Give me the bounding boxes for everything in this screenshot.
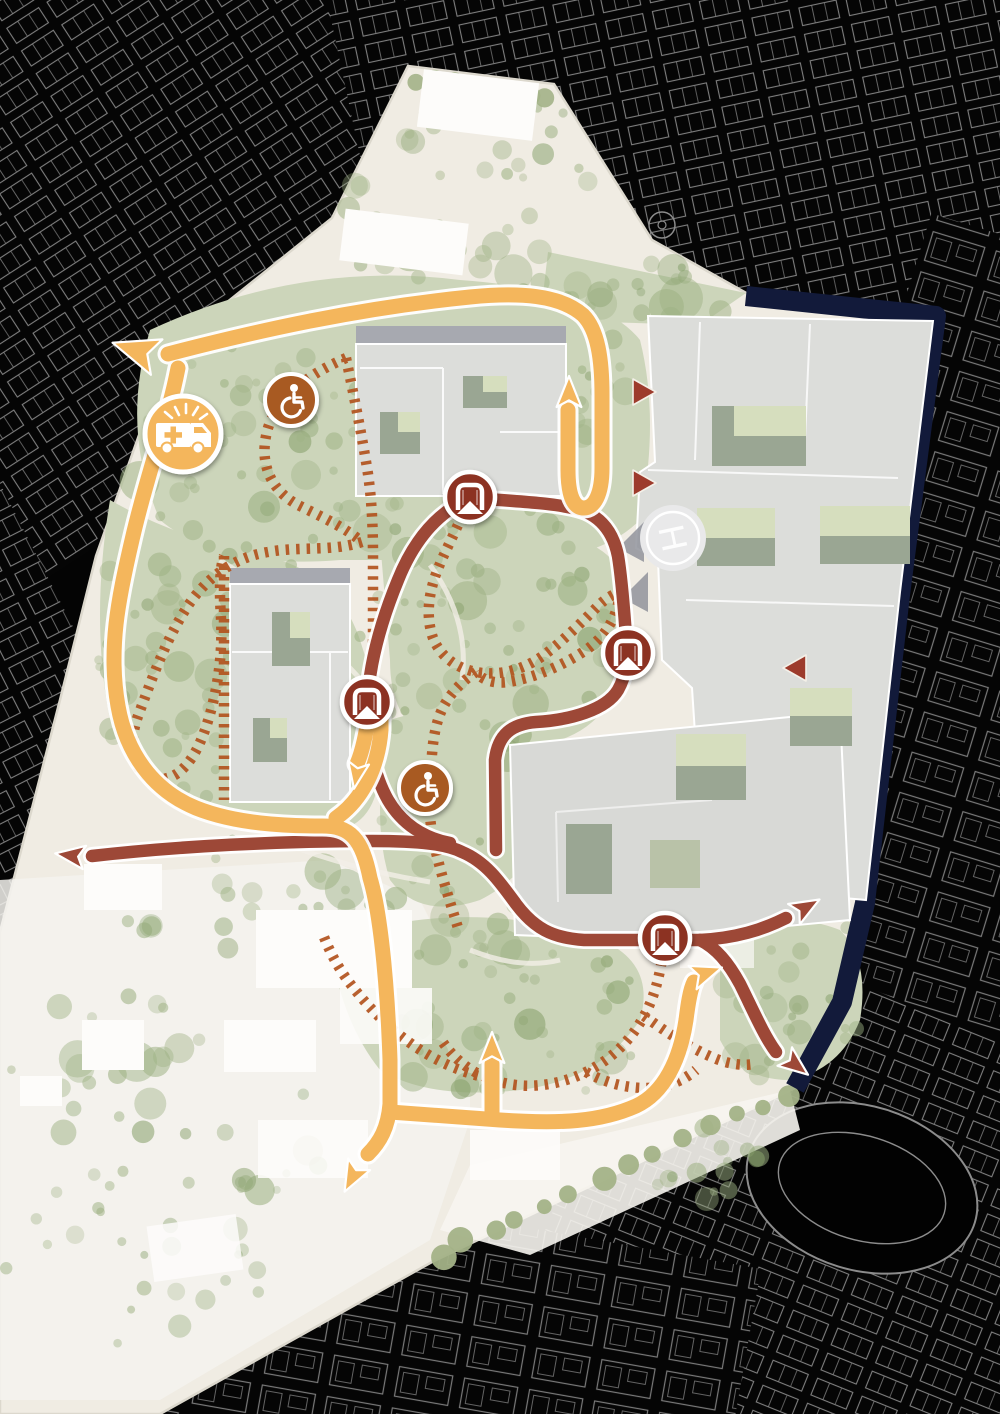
wheelchair-accessible-icon bbox=[265, 374, 317, 426]
main-entrance-icon bbox=[603, 628, 653, 678]
building-north bbox=[356, 326, 566, 496]
ambulance-entrance-icon bbox=[145, 396, 221, 472]
building-west bbox=[230, 568, 350, 802]
main-entrance-icon bbox=[640, 913, 690, 963]
map-canvas: H bbox=[0, 0, 1000, 1414]
helipad-icon: H bbox=[640, 505, 706, 571]
main-entrance-icon bbox=[445, 472, 495, 522]
main-entrance-icon bbox=[342, 677, 392, 727]
site-plan-map: H bbox=[0, 0, 1000, 1414]
wheelchair-accessible-icon bbox=[399, 762, 451, 814]
